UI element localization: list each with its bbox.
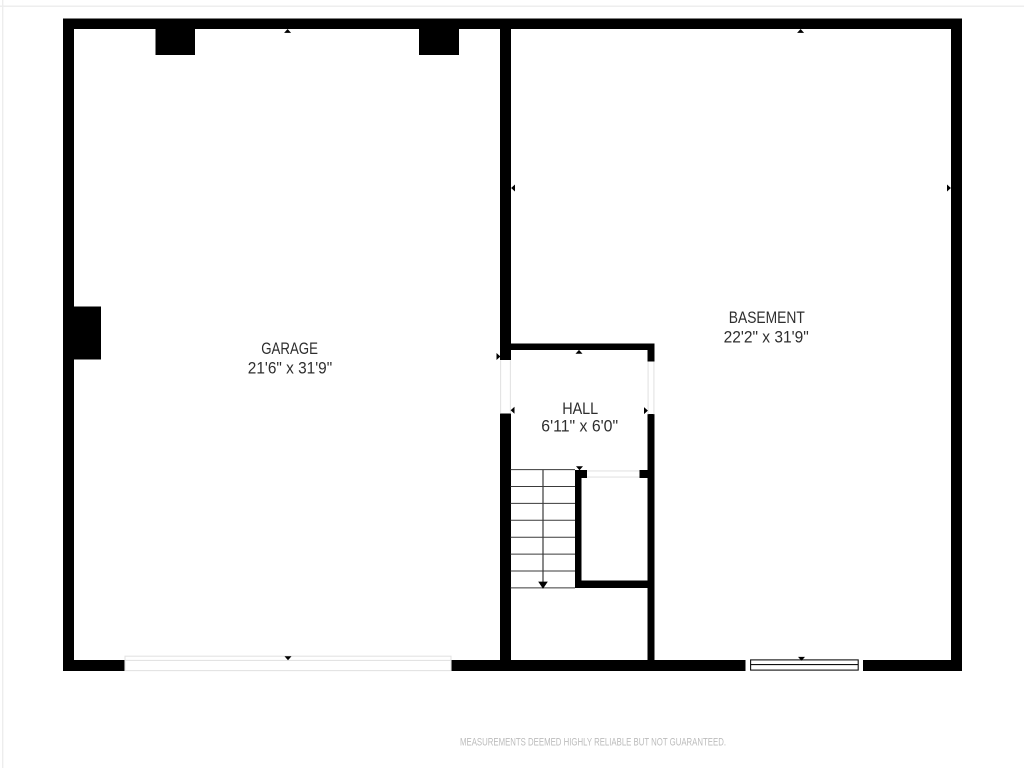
svg-text:GARAGE: GARAGE [261,339,318,358]
svg-text:MEASUREMENTS DEEMED HIGHLY REL: MEASUREMENTS DEEMED HIGHLY RELIABLE BUT … [460,737,726,749]
svg-text:BASEMENT: BASEMENT [729,308,805,327]
svg-text:21'6" x 31'9": 21'6" x 31'9" [248,358,332,377]
svg-text:22'2" x 31'9": 22'2" x 31'9" [724,327,809,346]
svg-text:6'11" x 6'0": 6'11" x 6'0" [541,416,618,435]
svg-text:HALL: HALL [562,399,598,418]
